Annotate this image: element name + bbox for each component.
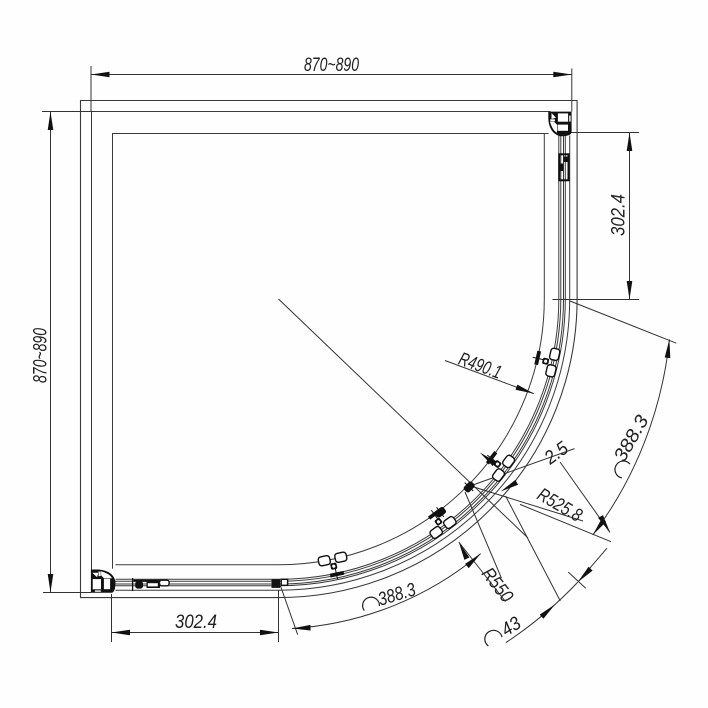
svg-text:302.4: 302.4: [175, 612, 217, 633]
svg-text:302.4: 302.4: [609, 194, 630, 236]
svg-text:870~890: 870~890: [30, 328, 51, 383]
svg-text:870~890: 870~890: [304, 55, 359, 76]
